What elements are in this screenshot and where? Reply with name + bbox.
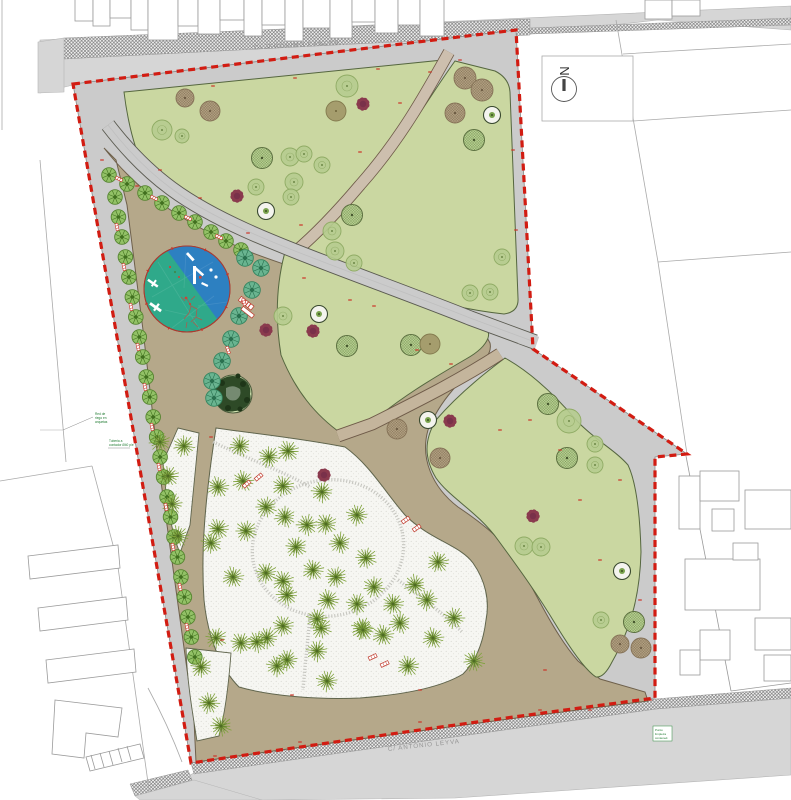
svg-text:N: N (557, 66, 572, 75)
svg-text:contador Ø40 p/e: contador Ø40 p/e (109, 443, 134, 447)
svg-text:contened.: contened. (655, 736, 668, 740)
svg-text:arquetas: arquetas (95, 420, 108, 424)
